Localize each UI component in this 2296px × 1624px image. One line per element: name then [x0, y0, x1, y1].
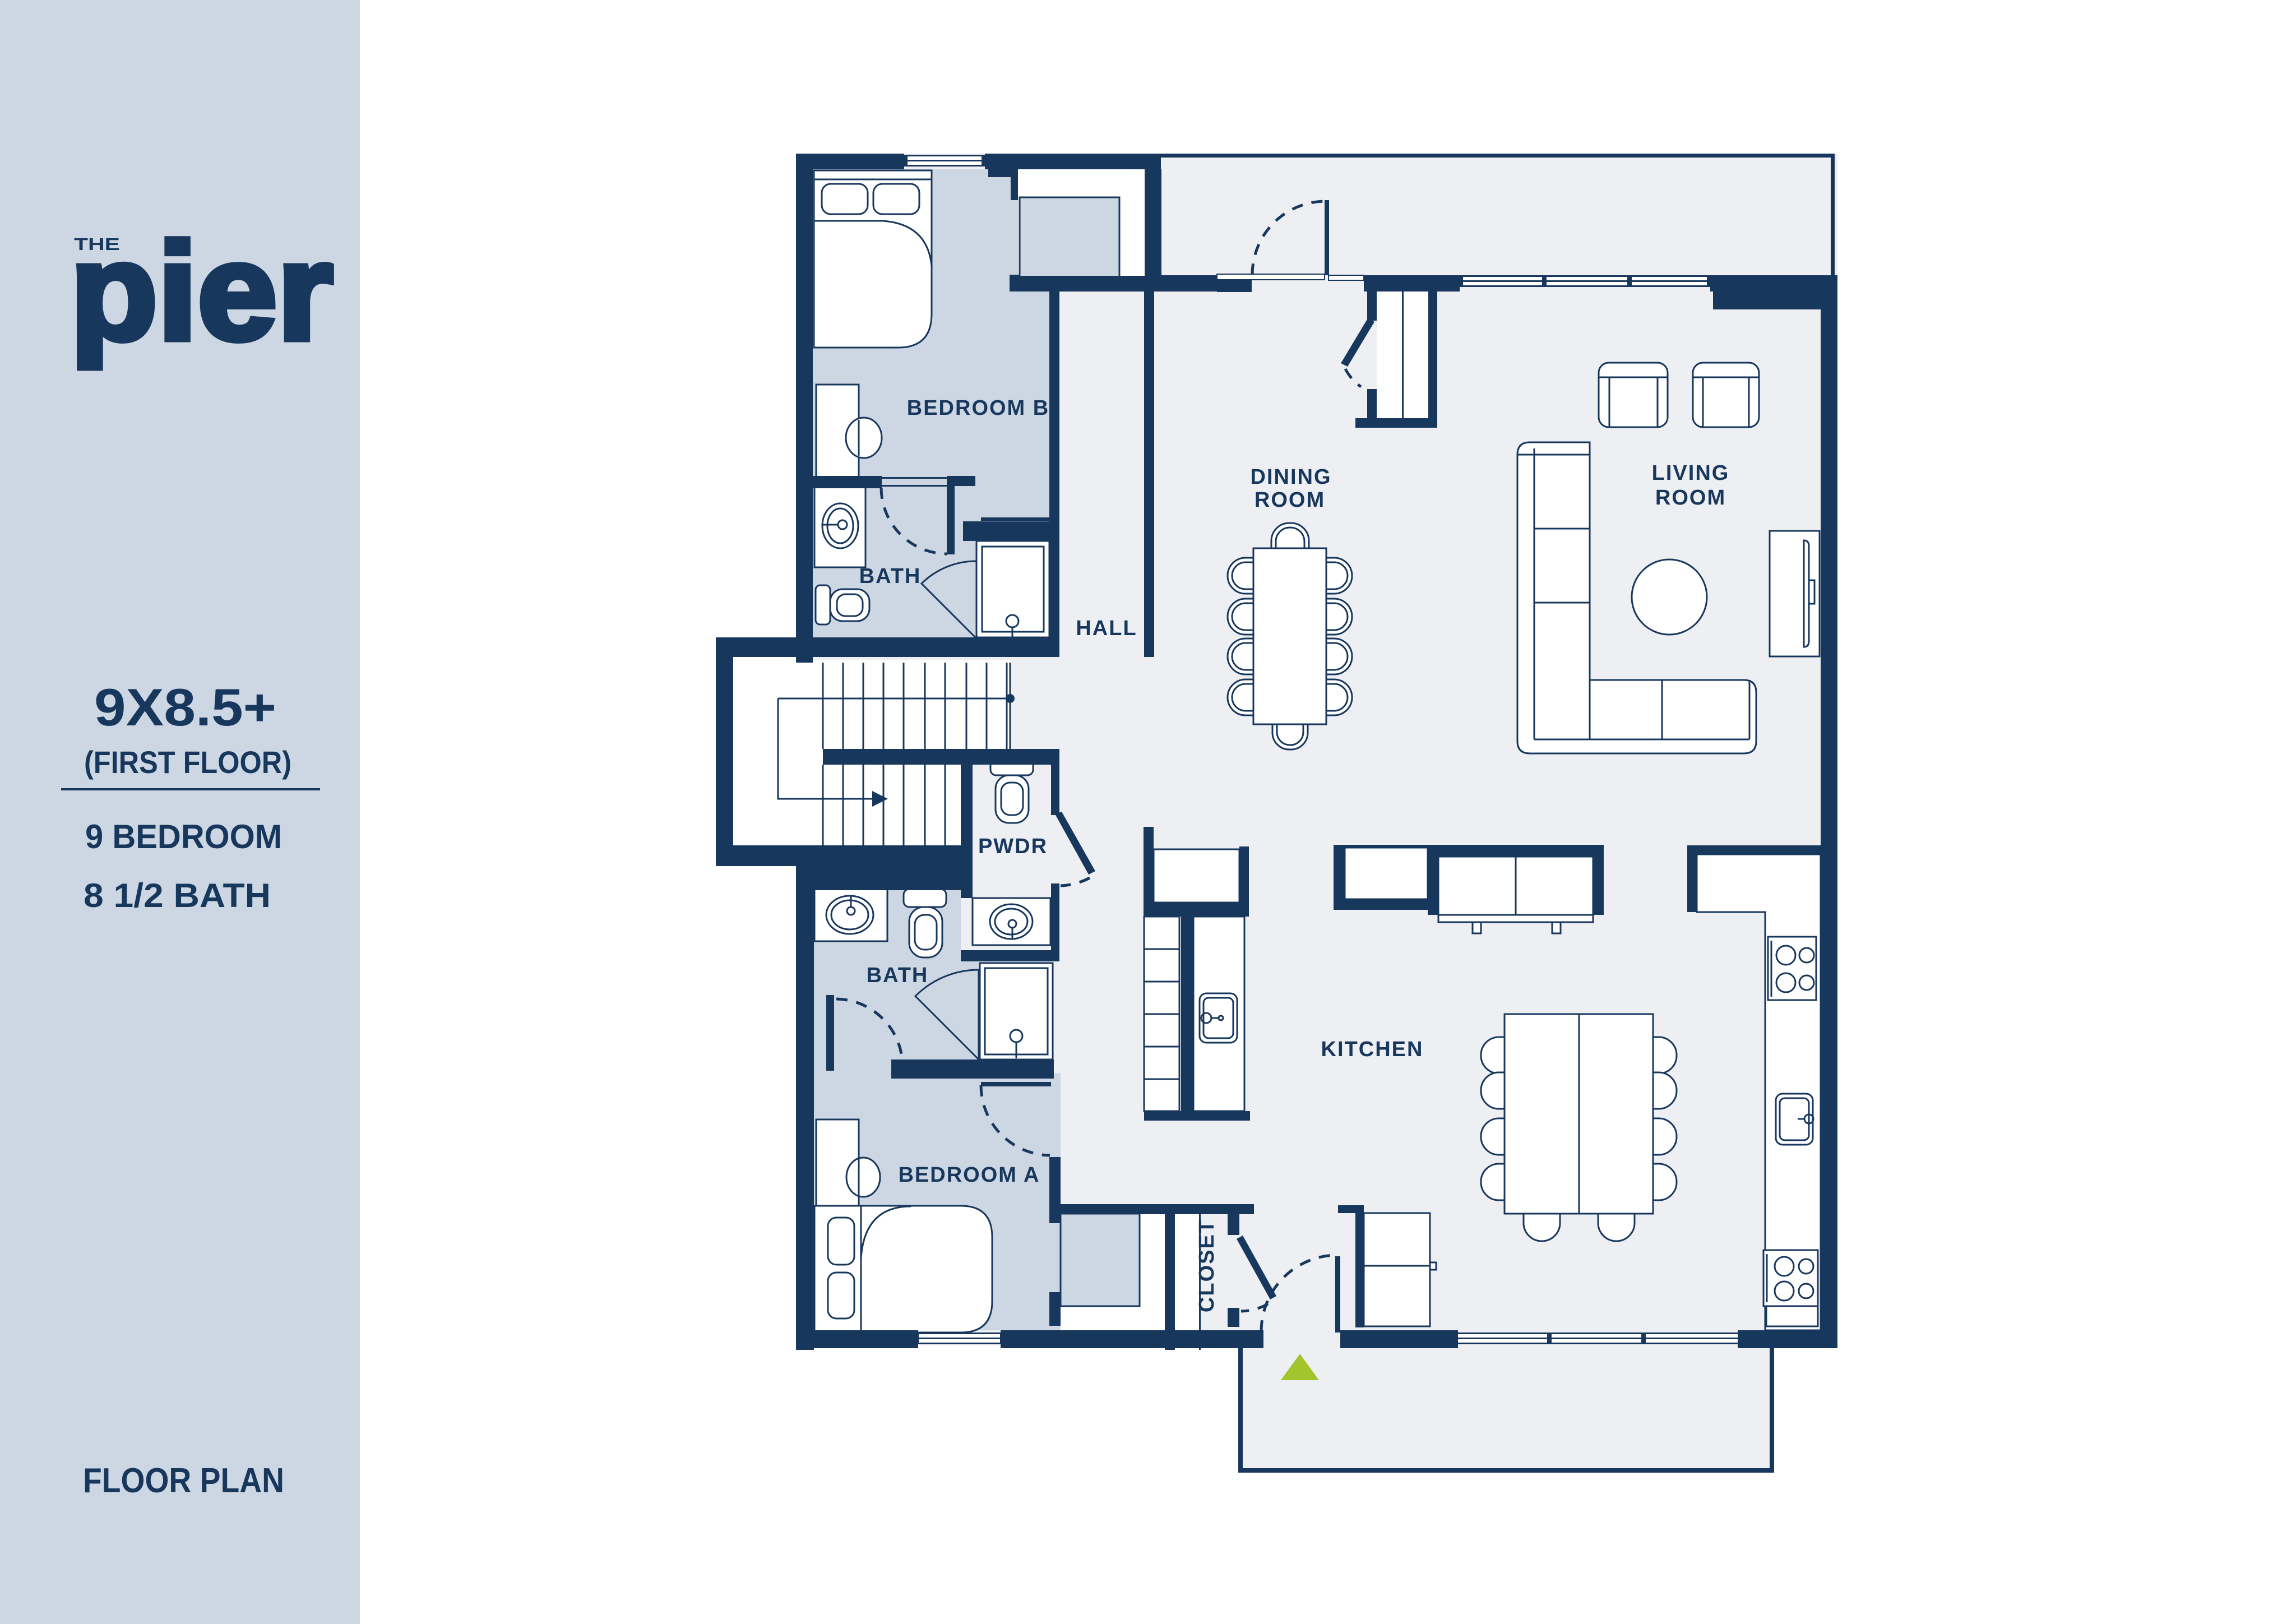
svg-text:ROOM: ROOM — [1655, 486, 1726, 510]
svg-text:BEDROOM A: BEDROOM A — [898, 1163, 1040, 1187]
svg-text:CLOSET: CLOSET — [1195, 1219, 1219, 1312]
svg-text:KITCHEN: KITCHEN — [1321, 1038, 1424, 1061]
svg-text:BEDROOM B: BEDROOM B — [907, 396, 1049, 420]
svg-text:8 1/2 BATH: 8 1/2 BATH — [84, 877, 271, 914]
svg-text:HALL: HALL — [1076, 617, 1137, 640]
svg-text:BATH: BATH — [867, 964, 929, 987]
svg-text:9X8.5+: 9X8.5+ — [94, 678, 276, 737]
svg-text:9 BEDROOM: 9 BEDROOM — [85, 818, 282, 855]
svg-text:FLOOR PLAN: FLOOR PLAN — [83, 1461, 284, 1500]
svg-text:pier: pier — [70, 215, 333, 369]
svg-text:(FIRST FLOOR): (FIRST FLOOR) — [84, 744, 291, 780]
svg-text:BATH: BATH — [859, 565, 922, 588]
svg-text:ROOM: ROOM — [1255, 488, 1325, 512]
svg-text:DINING: DINING — [1251, 465, 1332, 489]
svg-text:LIVING: LIVING — [1652, 461, 1730, 485]
svg-text:PWDR: PWDR — [978, 835, 1048, 858]
